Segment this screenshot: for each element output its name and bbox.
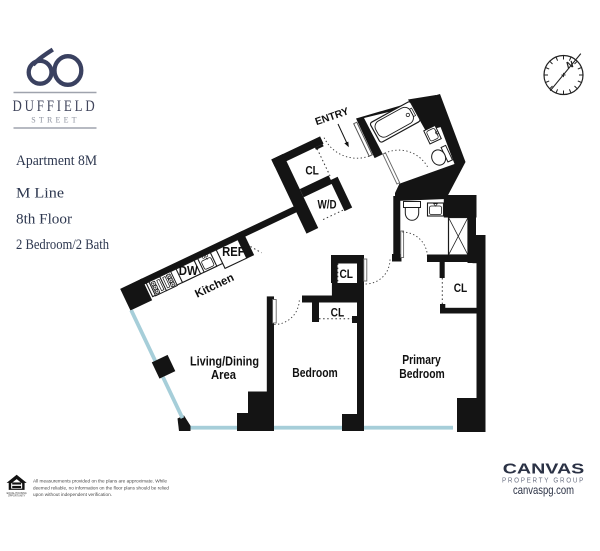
- svg-text:N: N: [565, 59, 575, 71]
- svg-text:STREET: STREET: [31, 116, 80, 125]
- svg-text:All measurements provided on t: All measurements provided on the plans a…: [33, 478, 167, 484]
- svg-text:Bedroom: Bedroom: [292, 365, 338, 380]
- svg-text:canvaspg.com: canvaspg.com: [513, 483, 574, 497]
- svg-text:DUFFIELD: DUFFIELD: [13, 98, 98, 115]
- svg-text:CL: CL: [331, 307, 345, 319]
- svg-text:W/D: W/D: [318, 200, 337, 212]
- svg-text:upon without independent verif: upon without independent verification.: [33, 492, 112, 498]
- svg-text:2 Bedroom/2 Bath: 2 Bedroom/2 Bath: [16, 237, 109, 253]
- svg-text:Bedroom: Bedroom: [399, 366, 445, 381]
- svg-text:DW: DW: [179, 264, 198, 278]
- svg-text:ENTRY: ENTRY: [314, 106, 351, 128]
- svg-text:OPPORTUNITY: OPPORTUNITY: [8, 494, 26, 497]
- svg-text:8th Floor: 8th Floor: [16, 212, 72, 228]
- svg-text:CL: CL: [305, 166, 319, 178]
- svg-text:CL: CL: [454, 283, 468, 295]
- svg-text:Primary: Primary: [402, 352, 441, 367]
- svg-text:Kitchen: Kitchen: [193, 272, 236, 301]
- svg-text:Apartment 8M: Apartment 8M: [16, 153, 97, 169]
- svg-text:M Line: M Line: [16, 186, 64, 202]
- svg-text:CL: CL: [339, 269, 353, 281]
- svg-text:deemed reliable, no informatio: deemed reliable, no information on the f…: [33, 485, 169, 491]
- svg-text:Area: Area: [211, 367, 237, 382]
- svg-text:REF: REF: [222, 245, 245, 259]
